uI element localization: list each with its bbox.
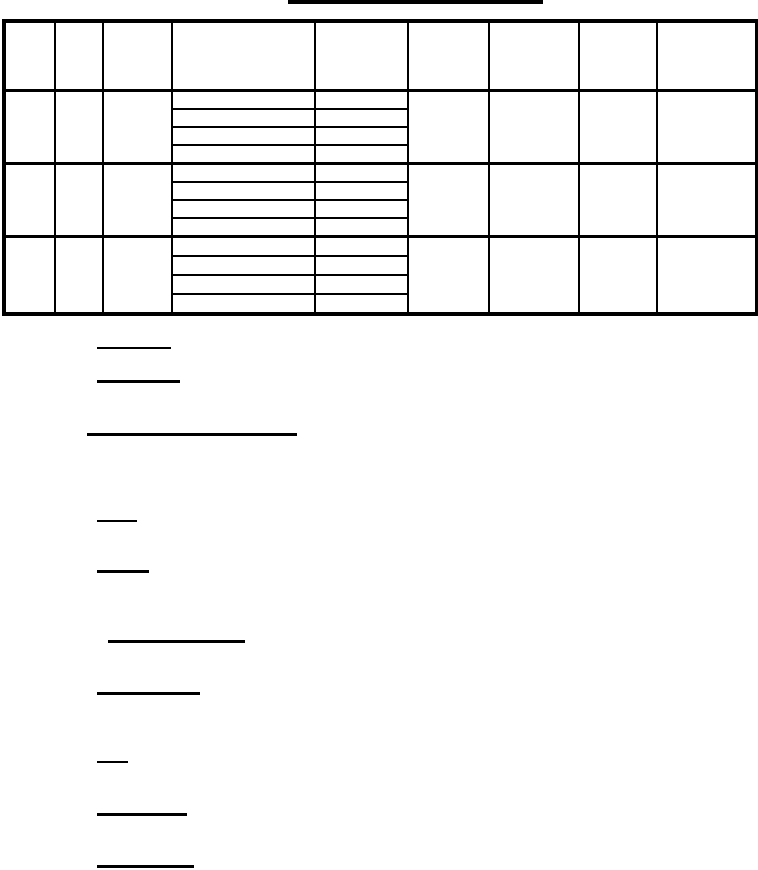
group-3-col-5-subcell-2: [315, 256, 408, 275]
group-1-col-2-cell: [55, 91, 103, 164]
group-3-col-9-cell: [657, 237, 757, 315]
header-cell-6: [408, 21, 489, 91]
group-2-col-3-cell: [103, 164, 172, 237]
group-2-col-1-cell: [4, 164, 55, 237]
blank-underline-2: [97, 380, 180, 383]
blank-underline-8: [97, 761, 128, 763]
blank-underline-6: [108, 640, 245, 643]
blank-schedule-table: [2, 19, 758, 316]
group-1-subrow-1: [4, 91, 757, 110]
group-2-col-7-cell: [489, 164, 579, 237]
group-3-col-3-cell: [103, 237, 172, 315]
group-1-col-4-subcell-2: [172, 109, 315, 127]
group-3-col-8-cell: [579, 237, 657, 315]
group-3-col-1-cell: [4, 237, 55, 315]
group-1-col-1-cell: [4, 91, 55, 164]
document-page: [0, 0, 758, 870]
blank-underline-5: [97, 570, 149, 573]
group-1-col-5-subcell-2: [315, 109, 408, 127]
blank-underline-10: [97, 865, 194, 868]
title-underline: [288, 0, 543, 4]
group-1-col-5-subcell-1: [315, 91, 408, 110]
group-3-col-4-subcell-2: [172, 256, 315, 275]
group-3-col-5-subcell-1: [315, 237, 408, 257]
group-1-col-4-subcell-3: [172, 127, 315, 145]
group-1-col-5-subcell-3: [315, 127, 408, 145]
group-1-col-9-cell: [657, 91, 757, 164]
group-3-col-4-subcell-3: [172, 275, 315, 294]
group-2-col-8-cell: [579, 164, 657, 237]
group-2-subrow-1: [4, 164, 757, 183]
group-3-col-5-subcell-3: [315, 275, 408, 294]
group-2-col-4-subcell-1: [172, 164, 315, 183]
group-2-col-4-subcell-2: [172, 182, 315, 200]
blank-underline-4: [97, 520, 137, 522]
group-3-col-5-subcell-4: [315, 294, 408, 314]
group-3-col-4-subcell-1: [172, 237, 315, 257]
group-3-col-6-cell: [408, 237, 489, 315]
group-1-col-7-cell: [489, 91, 579, 164]
group-2-col-6-cell: [408, 164, 489, 237]
header-cell-8: [579, 21, 657, 91]
group-1-col-3-cell: [103, 91, 172, 164]
group-2-col-5-subcell-3: [315, 200, 408, 218]
header-cell-2: [55, 21, 103, 91]
group-2-col-4-subcell-4: [172, 218, 315, 237]
header-cell-5: [315, 21, 408, 91]
group-3-subrow-1: [4, 237, 757, 257]
group-2-col-5-subcell-2: [315, 182, 408, 200]
header-cell-3: [103, 21, 172, 91]
group-2-col-4-subcell-3: [172, 200, 315, 218]
header-cell-9: [657, 21, 757, 91]
blank-underline-9: [97, 813, 187, 816]
group-1-col-8-cell: [579, 91, 657, 164]
table-header-row: [4, 21, 757, 91]
group-3-col-7-cell: [489, 237, 579, 315]
group-2-col-2-cell: [55, 164, 103, 237]
group-1-col-6-cell: [408, 91, 489, 164]
header-cell-1: [4, 21, 55, 91]
blank-underline-3: [87, 433, 297, 436]
blank-underline-1: [97, 347, 171, 349]
group-2-col-9-cell: [657, 164, 757, 237]
blank-underline-7: [97, 692, 200, 695]
header-cell-4: [172, 21, 315, 91]
group-1-col-4-subcell-4: [172, 145, 315, 164]
group-3-col-4-subcell-4: [172, 294, 315, 314]
header-cell-7: [489, 21, 579, 91]
group-3-col-2-cell: [55, 237, 103, 315]
group-1-col-5-subcell-4: [315, 145, 408, 164]
group-2-col-5-subcell-1: [315, 164, 408, 183]
group-2-col-5-subcell-4: [315, 218, 408, 237]
group-1-col-4-subcell-1: [172, 91, 315, 110]
